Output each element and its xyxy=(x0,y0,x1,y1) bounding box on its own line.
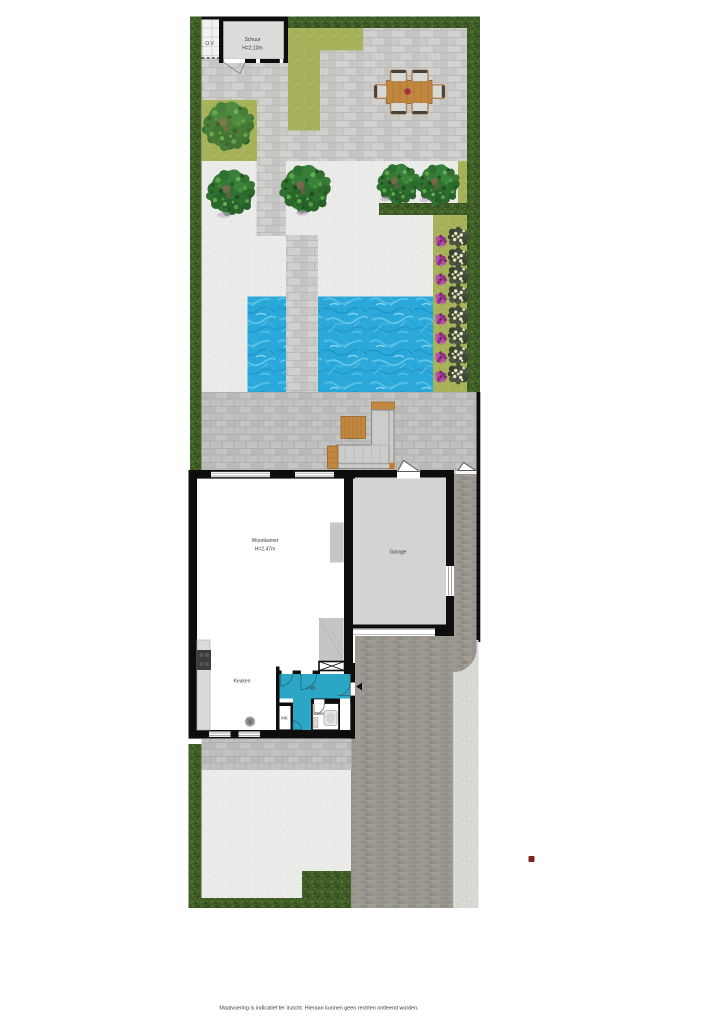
svg-text:H=2.47m: H=2.47m xyxy=(255,547,275,553)
svg-text:Maatvoering is indicatief ter: Maatvoering is indicatief ter inzicht. H… xyxy=(219,1006,418,1012)
svg-text:H=2.10m: H=2.10m xyxy=(242,46,262,52)
svg-text:O.V: O.V xyxy=(205,41,214,47)
svg-text:Garage: Garage xyxy=(390,550,407,556)
svg-text:Schuur: Schuur xyxy=(245,37,261,43)
svg-text:Keuken: Keuken xyxy=(234,679,251,685)
svg-text:MK: MK xyxy=(281,716,289,721)
svg-text:Woonkamer: Woonkamer xyxy=(252,538,279,544)
